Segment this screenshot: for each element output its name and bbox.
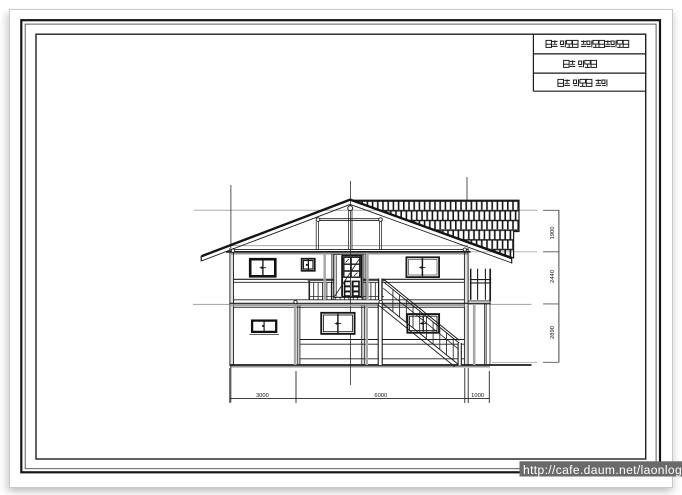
svg-text:6000: 6000 (374, 393, 387, 399)
svg-text:2440: 2440 (550, 270, 556, 283)
svg-text:http://cafe.daum.net/laonlog: http://cafe.daum.net/laonlog (523, 463, 682, 477)
svg-text:2890: 2890 (550, 326, 556, 339)
svg-text:1000: 1000 (471, 393, 484, 399)
svg-text:1900: 1900 (550, 227, 556, 240)
svg-text:3000: 3000 (256, 393, 269, 399)
